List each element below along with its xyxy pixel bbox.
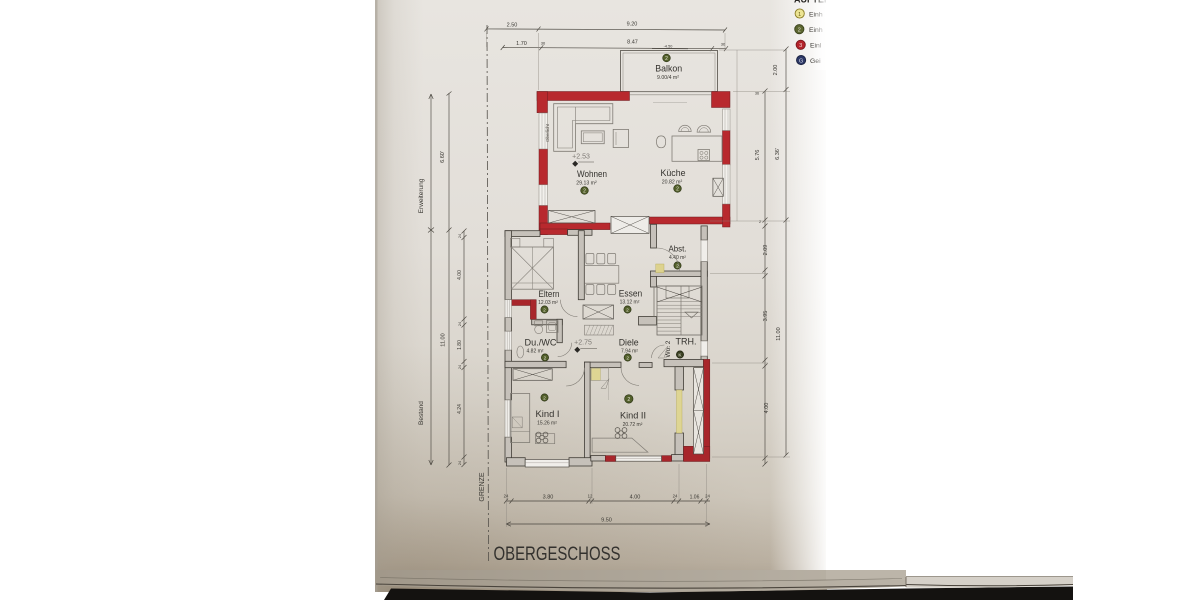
- svg-text:2: 2: [676, 187, 679, 193]
- svg-text:2: 2: [543, 308, 546, 314]
- svg-text:2: 2: [543, 396, 546, 402]
- svg-text:9.20: 9.20: [627, 22, 638, 28]
- svg-text:Du./WC: Du./WC: [525, 338, 558, 348]
- svg-text:8.47: 8.47: [627, 40, 638, 46]
- svg-text:24: 24: [705, 494, 710, 499]
- svg-text:6.36': 6.36': [775, 148, 781, 160]
- svg-text:1.80: 1.80: [457, 340, 463, 350]
- svg-text:Oberlicht: Oberlicht: [545, 123, 550, 142]
- svg-text:Bestand: Bestand: [418, 401, 425, 425]
- svg-text:+2.75: +2.75: [574, 340, 592, 347]
- svg-text:24: 24: [458, 234, 462, 238]
- svg-text:12.03 m²: 12.03 m²: [538, 300, 558, 306]
- svg-text:36: 36: [541, 41, 546, 46]
- svg-text:Eltern: Eltern: [539, 289, 560, 299]
- svg-text:2: 2: [583, 189, 586, 195]
- svg-text:24: 24: [458, 365, 462, 369]
- svg-text:24: 24: [458, 322, 462, 326]
- svg-text:Wohnen: Wohnen: [577, 169, 607, 180]
- svg-text:1.06: 1.06: [690, 495, 700, 501]
- svg-text:4.24: 4.24: [457, 404, 463, 414]
- svg-text:Balkon: Balkon: [655, 64, 682, 75]
- svg-text:20.82 m²: 20.82 m²: [662, 180, 683, 186]
- svg-text:29.13 m²: 29.13 m²: [576, 181, 597, 187]
- svg-text:12: 12: [588, 494, 593, 499]
- svg-text:2: 2: [665, 56, 668, 62]
- svg-text:2.00: 2.00: [773, 65, 779, 76]
- svg-text:2: 2: [798, 28, 801, 34]
- svg-text:2: 2: [627, 397, 630, 403]
- svg-text:-4.50: -4.50: [664, 45, 673, 49]
- svg-text:3.80: 3.80: [543, 495, 554, 501]
- svg-text:11.00: 11.00: [441, 333, 447, 346]
- svg-text:4.00: 4.00: [457, 270, 463, 280]
- svg-text:5.76: 5.76: [755, 150, 761, 161]
- svg-text:TRH.: TRH.: [676, 337, 697, 348]
- svg-text:2: 2: [626, 308, 629, 314]
- svg-text:1.70: 1.70: [516, 41, 527, 47]
- svg-text:4.40 m²: 4.40 m²: [669, 255, 686, 261]
- svg-text:4.00: 4.00: [764, 403, 770, 414]
- svg-text:+2.53: +2.53: [572, 154, 590, 161]
- svg-text:2.09: 2.09: [763, 245, 769, 256]
- svg-text:3.95: 3.95: [763, 311, 769, 322]
- svg-text:13.12 m²: 13.12 m²: [620, 300, 640, 306]
- svg-text:36: 36: [755, 92, 759, 96]
- svg-text:Küche: Küche: [661, 168, 686, 179]
- svg-text:Kind I: Kind I: [536, 409, 560, 419]
- svg-text:7.94 m²: 7.94 m²: [621, 349, 638, 355]
- svg-text:OBERGESCHOSS: OBERGESCHOSS: [494, 543, 621, 565]
- svg-text:9.50: 9.50: [601, 518, 612, 524]
- svg-text:Essen: Essen: [619, 289, 643, 299]
- svg-text:GRENZE: GRENZE: [479, 472, 486, 502]
- svg-text:2: 2: [544, 356, 547, 362]
- svg-text:Abst.: Abst.: [669, 244, 687, 254]
- svg-text:2: 2: [626, 356, 629, 362]
- svg-text:2: 2: [759, 220, 761, 224]
- svg-text:G: G: [799, 58, 803, 64]
- svg-text:3: 3: [799, 43, 802, 49]
- svg-text:Diele: Diele: [619, 338, 639, 349]
- svg-text:24: 24: [673, 494, 678, 499]
- svg-text:Wo. 2: Wo. 2: [665, 340, 672, 357]
- svg-text:4.82 m²: 4.82 m²: [527, 349, 544, 355]
- svg-text:Kind II: Kind II: [620, 411, 646, 421]
- svg-text:36: 36: [721, 42, 726, 47]
- svg-text:24: 24: [504, 494, 509, 499]
- svg-text:6.60': 6.60': [440, 151, 446, 163]
- svg-text:Erweiterung: Erweiterung: [418, 178, 425, 213]
- svg-text:15.26 m²: 15.26 m²: [537, 421, 557, 427]
- svg-text:24: 24: [458, 461, 462, 465]
- svg-text:20.72 m²: 20.72 m²: [623, 422, 643, 428]
- svg-text:11.00: 11.00: [776, 327, 782, 340]
- svg-text:1: 1: [798, 12, 801, 18]
- svg-text:9.00/4 m²: 9.00/4 m²: [657, 75, 679, 81]
- svg-text:4.00: 4.00: [630, 495, 641, 501]
- svg-text:2.50: 2.50: [507, 23, 518, 29]
